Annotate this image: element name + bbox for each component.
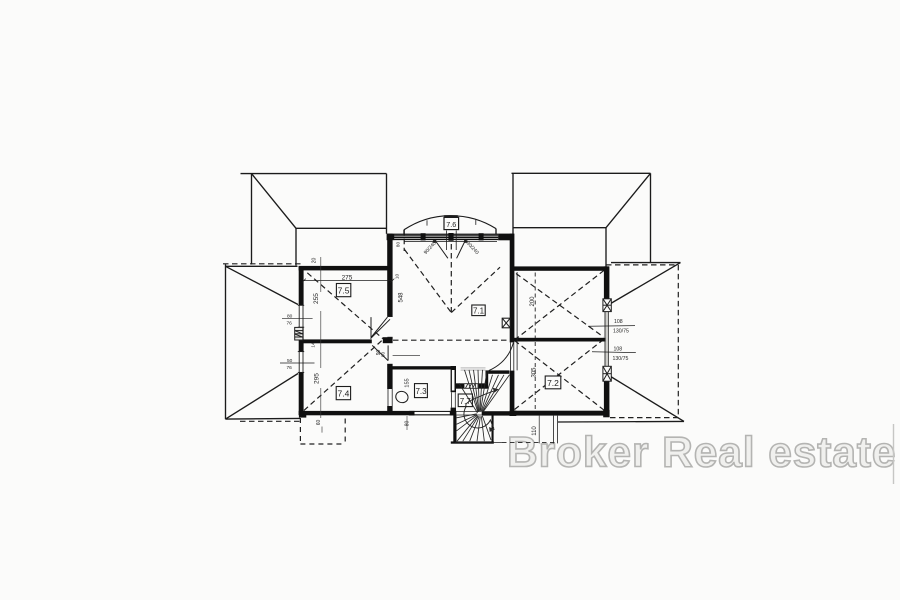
svg-text:108: 108 (614, 347, 623, 353)
svg-text:80: 80 (404, 421, 410, 427)
svg-text:7.3: 7.3 (415, 387, 427, 396)
svg-text:255: 255 (313, 293, 320, 304)
svg-text:7.2: 7.2 (547, 378, 559, 388)
svg-text:20: 20 (311, 258, 317, 264)
svg-text:90/240: 90/240 (465, 241, 480, 256)
svg-text:108: 108 (614, 319, 623, 325)
svg-text:Broker Real estate: Broker Real estate (507, 430, 896, 477)
svg-text:7.5: 7.5 (338, 286, 350, 296)
svg-text:7.1: 7.1 (473, 307, 485, 316)
svg-text:10: 10 (395, 274, 400, 280)
svg-text:275: 275 (342, 274, 353, 281)
svg-text:200: 200 (530, 296, 536, 307)
svg-text:7.6: 7.6 (446, 220, 456, 229)
svg-text:548: 548 (399, 292, 405, 303)
svg-text:155: 155 (404, 378, 410, 387)
svg-text:90/240: 90/240 (423, 240, 438, 255)
svg-text:50: 50 (287, 358, 293, 364)
svg-text:7.4: 7.4 (337, 389, 349, 399)
svg-text:7.7: 7.7 (460, 397, 472, 406)
svg-text:14: 14 (311, 342, 316, 348)
svg-text:80: 80 (381, 352, 386, 358)
svg-text:80: 80 (396, 242, 401, 248)
svg-text:130/75: 130/75 (613, 356, 629, 362)
svg-text:305: 305 (532, 367, 538, 378)
svg-text:130/75: 130/75 (613, 329, 629, 335)
svg-text:76: 76 (287, 321, 293, 327)
svg-text:295: 295 (314, 373, 321, 384)
svg-text:60: 60 (316, 420, 322, 426)
svg-text:80: 80 (287, 314, 293, 320)
svg-text:110: 110 (532, 426, 538, 436)
svg-text:76: 76 (287, 365, 293, 371)
